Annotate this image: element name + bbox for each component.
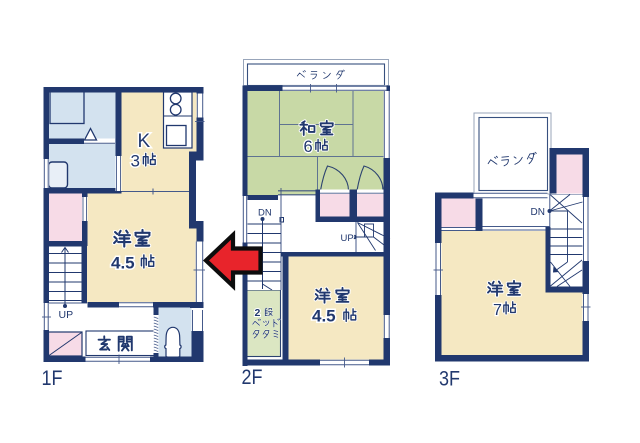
svg-text:3: 3 [131,152,140,171]
svg-text:3F: 3F [439,367,460,391]
svg-text:K: K [138,131,151,152]
svg-text:4.5: 4.5 [111,254,135,273]
svg-text:2: 2 [255,307,261,319]
svg-text:6: 6 [304,138,313,156]
svg-text:7: 7 [493,302,502,319]
svg-text:DN: DN [531,207,545,218]
svg-text:2F: 2F [242,365,263,389]
svg-text:4.5: 4.5 [312,307,336,326]
svg-text:1F: 1F [42,366,63,390]
svg-text:UP: UP [341,233,354,244]
svg-text:DN: DN [258,208,272,219]
svg-text:UP: UP [59,309,74,321]
